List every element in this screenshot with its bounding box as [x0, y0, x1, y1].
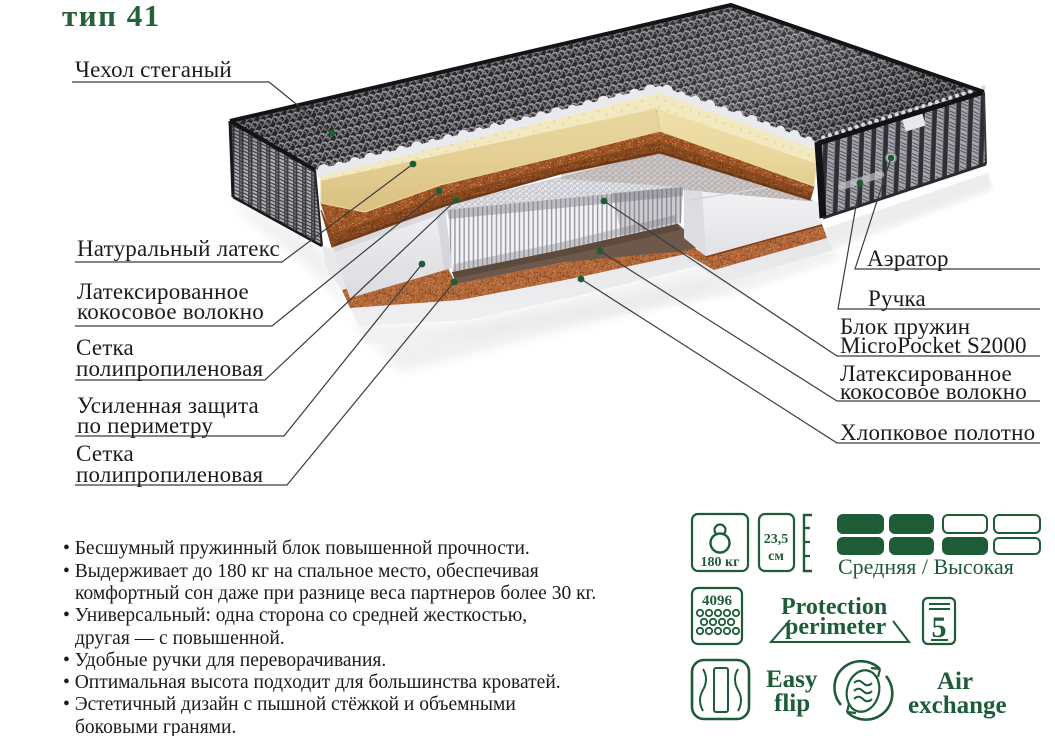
svg-text:полипропиленовая: полипропиленовая	[76, 356, 263, 381]
svg-text:• Бесшумный пружинный блок пов: • Бесшумный пружинный блок повышенной пр…	[63, 538, 530, 559]
svg-text:• Универсальный: одна сторона: • Универсальный: одна сторона со средней…	[63, 605, 527, 626]
svg-text:• Выдерживает до 180 кг на спа: • Выдерживает до 180 кг на спальное мест…	[63, 561, 539, 582]
svg-text:• Оптимальная высота подходит: • Оптимальная высота подходит для больши…	[63, 672, 561, 693]
svg-text:flip: flip	[774, 690, 810, 717]
svg-text:Аэратор: Аэратор	[867, 246, 949, 271]
svg-text:Ручка: Ручка	[868, 286, 926, 311]
svg-text:боковыми гранями.: боковыми гранями.	[75, 717, 236, 736]
svg-text:180 кг: 180 кг	[701, 555, 740, 570]
svg-text:Чехол стеганый: Чехол стеганый	[75, 57, 232, 82]
svg-text:MicroPocket S2000: MicroPocket S2000	[840, 333, 1027, 358]
svg-text:Easy: Easy	[766, 666, 818, 693]
svg-text:см: см	[768, 549, 784, 564]
svg-text:exchange: exchange	[908, 692, 1007, 719]
svg-text:• Эстетичный дизайн с пышной с: • Эстетичный дизайн с пышной стёжкой и о…	[63, 694, 516, 715]
svg-text:• Удобные ручки для переворачи: • Удобные ручки для переворачивания.	[63, 650, 386, 671]
svg-text:комфортный сон даже при разниц: комфортный сон даже при разнице веса пар…	[75, 583, 596, 604]
svg-text:тип 41: тип 41	[62, 0, 161, 33]
svg-text:4096: 4096	[702, 593, 733, 609]
svg-text:полипропиленовая: полипропиленовая	[76, 462, 263, 487]
svg-text:кокосовое волокно: кокосовое волокно	[840, 379, 1027, 404]
svg-text:Air: Air	[937, 668, 973, 695]
svg-text:кокосовое волокно: кокосовое волокно	[77, 299, 264, 324]
svg-text:perimeter: perimeter	[785, 614, 887, 640]
svg-text:по периметру: по периметру	[77, 413, 213, 438]
svg-text:Средняя / Высокая: Средняя / Высокая	[838, 554, 1014, 579]
svg-text:другая — с повышенной.: другая — с повышенной.	[75, 628, 285, 649]
svg-text:Хлопковое полотно: Хлопковое полотно	[840, 420, 1035, 445]
svg-text:23,5: 23,5	[764, 532, 789, 547]
svg-text:Натуральный латекс: Натуральный латекс	[77, 236, 280, 261]
